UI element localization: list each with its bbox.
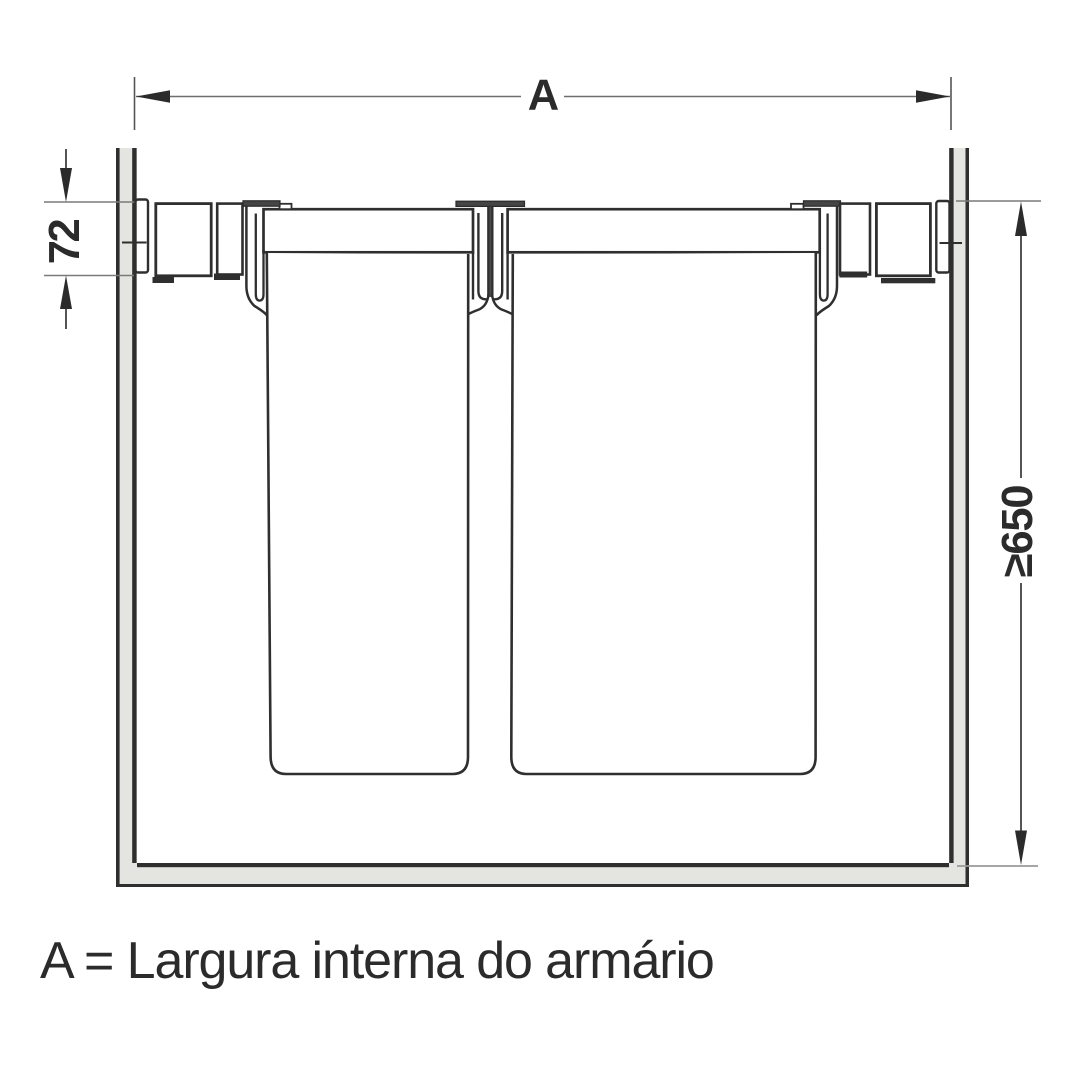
svg-text:A = Largura interna do armário: A = Largura interna do armário	[40, 932, 714, 990]
svg-text:≥650: ≥650	[994, 486, 1042, 578]
svg-text:A: A	[528, 72, 559, 120]
svg-text:72: 72	[41, 220, 89, 265]
